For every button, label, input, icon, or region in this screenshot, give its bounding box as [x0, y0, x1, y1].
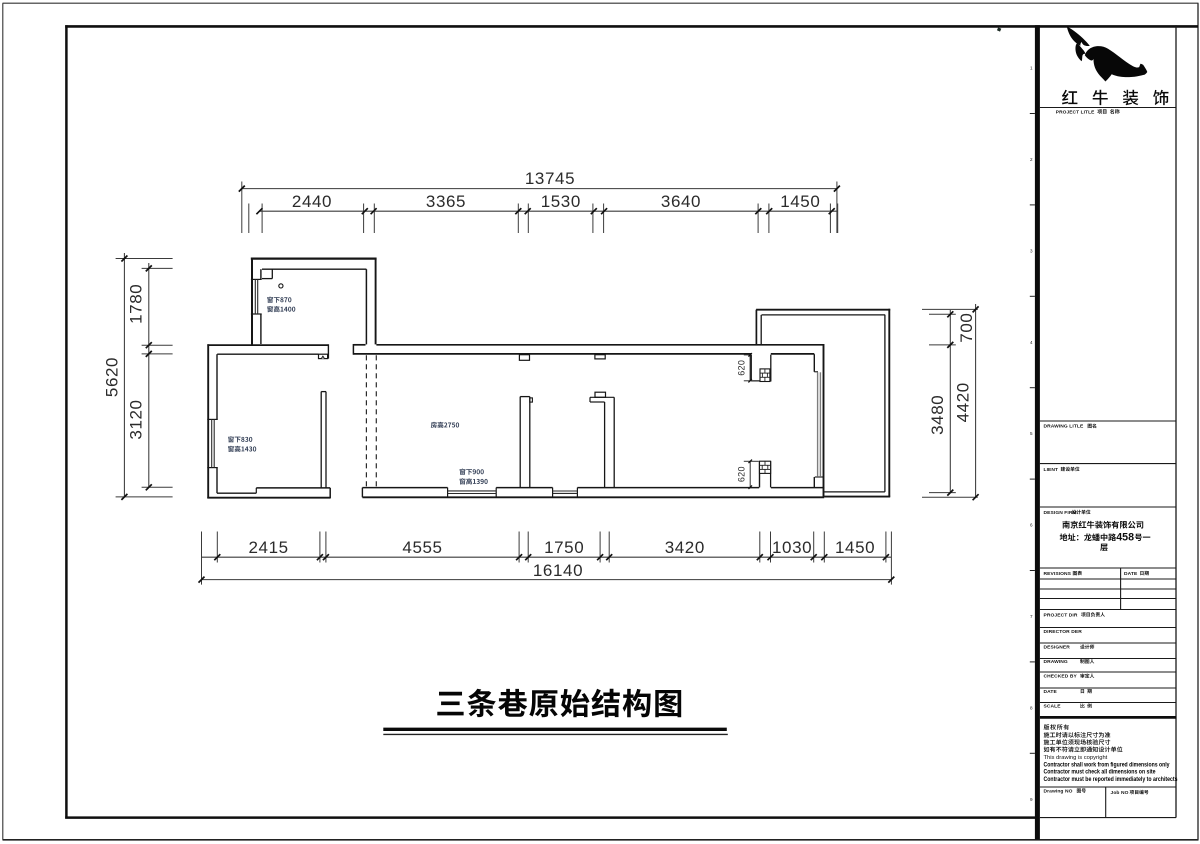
svg-text:SCALE: SCALE: [1044, 704, 1062, 710]
svg-text:DESIGNER: DESIGNER: [1044, 645, 1071, 651]
svg-text:620: 620: [737, 360, 747, 376]
svg-text:Contractor shall work from fig: Contractor shall work from figured dimen…: [1044, 761, 1170, 768]
svg-text:2440: 2440: [292, 192, 332, 211]
svg-text:Contractor must check all dime: Contractor must check all dimensions on …: [1044, 769, 1156, 776]
svg-text:5620: 5620: [102, 357, 121, 397]
svg-text:1530: 1530: [541, 192, 581, 211]
svg-text:3120: 3120: [127, 399, 146, 439]
svg-text:2415: 2415: [248, 538, 288, 557]
svg-text:Drawing NO: Drawing NO: [1044, 788, 1073, 794]
svg-text:9: 9: [1030, 797, 1033, 802]
svg-text:3640: 3640: [661, 192, 701, 211]
svg-text:13745: 13745: [525, 169, 575, 188]
svg-text:DATE: DATE: [1124, 571, 1138, 577]
svg-text:DATE: DATE: [1044, 689, 1058, 695]
svg-text:458: 458: [1116, 531, 1134, 543]
svg-text:Contractor must be reported im: Contractor must be reported immediately …: [1044, 776, 1178, 783]
svg-text:1780: 1780: [127, 284, 146, 324]
svg-text:PROJECT DIR: PROJECT DIR: [1044, 612, 1078, 618]
svg-text:3420: 3420: [665, 538, 705, 557]
svg-text:7: 7: [1030, 614, 1033, 619]
svg-text:This drawing is copyright: This drawing is copyright: [1044, 755, 1108, 761]
svg-text:DRAWING LITLE: DRAWING LITLE: [1044, 424, 1085, 430]
svg-text:3: 3: [1030, 248, 1033, 253]
svg-text:4: 4: [1030, 340, 1033, 345]
svg-text:700: 700: [957, 313, 976, 343]
svg-text:4555: 4555: [402, 538, 442, 557]
svg-text:1450: 1450: [835, 538, 875, 557]
svg-text:LIENT: LIENT: [1044, 467, 1059, 473]
svg-text:6: 6: [1030, 523, 1033, 528]
svg-text:DESIGN FIRM: DESIGN FIRM: [1044, 510, 1077, 516]
svg-text:8: 8: [1030, 705, 1033, 710]
svg-text:2: 2: [1030, 157, 1033, 162]
svg-text:REVISIONS: REVISIONS: [1044, 571, 1072, 577]
svg-text:4420: 4420: [954, 382, 973, 422]
svg-text:3365: 3365: [426, 192, 466, 211]
svg-text:1030: 1030: [772, 538, 812, 557]
svg-text:620: 620: [737, 466, 747, 482]
svg-text:1750: 1750: [544, 538, 584, 557]
svg-text:5: 5: [1030, 431, 1033, 436]
svg-text:CHECKED BY: CHECKED BY: [1044, 674, 1078, 680]
svg-text:PROJECT LITLE: PROJECT LITLE: [1056, 109, 1095, 115]
svg-text:3480: 3480: [928, 395, 947, 435]
svg-text:16140: 16140: [533, 561, 583, 580]
svg-text:1450: 1450: [780, 192, 820, 211]
svg-text:1: 1: [1030, 66, 1033, 71]
svg-text:DRAWING: DRAWING: [1044, 659, 1068, 665]
svg-text:DIRECTOR DER: DIRECTOR DER: [1044, 629, 1083, 635]
svg-text:Job NO: Job NO: [1111, 790, 1129, 796]
